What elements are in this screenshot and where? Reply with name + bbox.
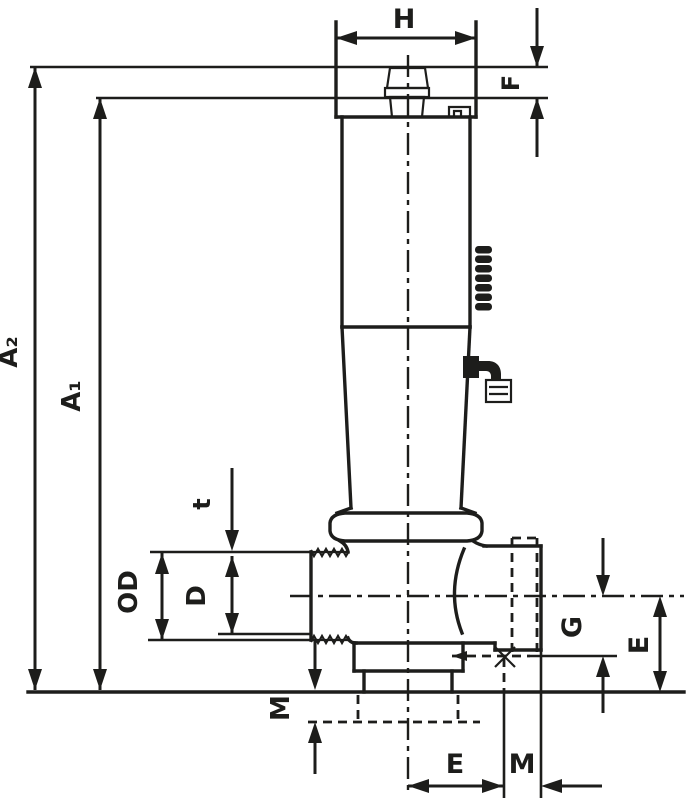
valve-dimension-drawing: A₂ A₁ H F (0, 0, 686, 800)
dimension-m-left: M (266, 640, 322, 774)
dimension-a1: A₁ (57, 98, 107, 690)
handle-outline (342, 117, 470, 508)
dimension-od-label: OD (114, 570, 144, 614)
dimension-od: OD (114, 553, 169, 640)
dimension-e-right-label: E (624, 636, 655, 654)
handle-clip-detail (463, 356, 511, 402)
dimension-h: H (336, 4, 476, 45)
dimension-e-bottom: E (408, 749, 503, 793)
hidden-thread-dashed-outlet (308, 695, 480, 722)
dimension-m-bottom: M (509, 749, 602, 793)
dimension-e-right: E (624, 596, 667, 692)
dimension-m-bottom-label: M (509, 749, 536, 780)
dimension-a2: A₂ (0, 67, 42, 690)
dimension-e-bottom-label: E (446, 749, 464, 780)
dimension-h-label: H (393, 4, 416, 35)
dimension-a1-label: A₁ (57, 380, 87, 412)
top-reference-lines (30, 67, 548, 98)
dimension-f: F (497, 8, 544, 157)
dimension-d: D (182, 556, 239, 634)
dimension-g: G (557, 538, 610, 713)
drawing-page: A₂ A₁ H F (0, 0, 686, 800)
knurl-pattern-icon (475, 246, 492, 311)
dimension-t-label: t (188, 498, 216, 509)
bonnet-flange (330, 508, 482, 541)
dimension-a2-label: A₂ (0, 336, 24, 368)
dimension-t: t (188, 468, 239, 551)
center-line (290, 55, 684, 790)
dimension-m-left-label: M (266, 695, 296, 721)
dimension-d-label: D (182, 585, 212, 607)
hidden-thread-dashed-port (504, 538, 537, 692)
dimension-f-label: F (497, 75, 525, 91)
dimension-g-label: G (557, 616, 588, 638)
